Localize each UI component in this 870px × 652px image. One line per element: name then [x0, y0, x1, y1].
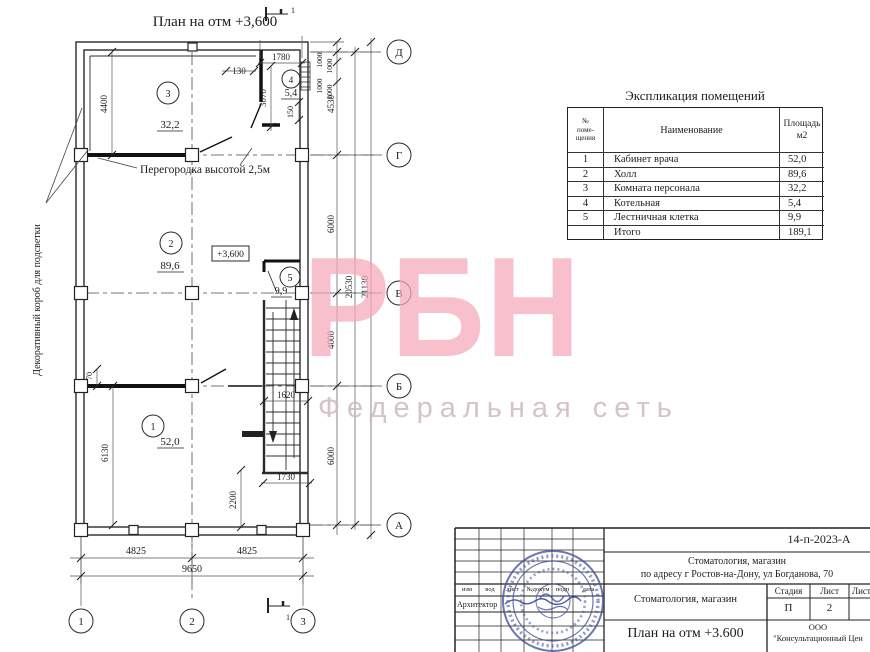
section-mark-bottom: [268, 598, 290, 613]
table-row-name: Кабинет врача: [604, 153, 780, 168]
room-2-number: 2: [169, 239, 174, 250]
dim-ticks-stairs: [237, 397, 314, 531]
axis-label-1: 1: [78, 616, 84, 628]
dim-lines-stairs: [241, 401, 312, 528]
sheet-header: Лист: [810, 586, 849, 596]
sheet-value: 2: [810, 602, 849, 614]
room-3-number: 3: [166, 89, 171, 100]
room-1-number: 1: [151, 422, 156, 433]
col-header-number: №поме-щения: [568, 108, 604, 153]
elevation-value: +3,600: [217, 250, 244, 260]
dim-1730: 1730: [277, 472, 296, 482]
dim-1620: 1620: [277, 390, 296, 400]
dim-1000-c: 1000: [325, 58, 334, 73]
dim-4825-b: 4825: [237, 546, 257, 557]
dim-4400: 4400: [99, 95, 109, 114]
drawing-name: План на отм +3.600: [606, 626, 765, 642]
dim-70: 70: [85, 372, 94, 380]
dim-1000-a: 1000: [315, 52, 324, 67]
table-row-num: 3: [568, 182, 604, 197]
rev-header-dokum: №докум: [525, 586, 551, 593]
dim-4530: 4530: [326, 95, 336, 114]
table-row-num: [568, 226, 604, 240]
dim-1000-b: 1000: [315, 78, 324, 93]
drawing-sheet: План на отм +3,600 1 1: [0, 0, 870, 652]
table-grid: №поме-щения Наименование Площадьм2 1 Каб…: [567, 107, 823, 240]
table-row-area: 89,6: [780, 168, 824, 183]
axis-label-a: А: [395, 520, 403, 532]
room-3-area: 32,2: [160, 119, 179, 131]
table-row-name: Комната персонала: [604, 182, 780, 197]
dim-9650: 9650: [182, 564, 202, 575]
rev-header-data: дата: [574, 586, 603, 593]
axis-label-3: 3: [300, 616, 306, 628]
rev-header-izm: изм: [456, 586, 478, 593]
table-row-num: 2: [568, 168, 604, 183]
stair-handrail: [242, 431, 264, 437]
table-row-num: 4: [568, 197, 604, 212]
plan-title: План на отм +3,600: [153, 14, 278, 30]
dim-150: 150: [286, 106, 295, 118]
watermark-logo: РБН: [303, 237, 581, 379]
side-note: Декоративный короб для подсветки: [32, 224, 43, 376]
axis-label-d: Д: [395, 47, 403, 59]
axis-label-g: Г: [396, 150, 402, 162]
table-row-name: Холл: [604, 168, 780, 183]
sheets-header: Листо: [852, 586, 870, 596]
object-name: Стоматология, магазин: [606, 594, 765, 605]
room-4-area: 5,4: [285, 88, 298, 99]
room-1-area: 52,0: [160, 436, 180, 448]
table-row-name: Лестничная клетка: [604, 211, 780, 226]
dim-6130: 6130: [100, 444, 110, 463]
rev-header-podp: подп: [553, 586, 572, 593]
col-header-area: Площадьм2: [780, 108, 824, 153]
room-schedule-table: Экспликация помещений №поме-щения Наимен…: [567, 88, 823, 240]
table-row-area: 189,1: [780, 226, 824, 240]
table-row-num: 5: [568, 211, 604, 226]
dim-3070: 3070: [258, 89, 268, 108]
room-5-area: 9,9: [275, 286, 288, 297]
table-row-area: 52,0: [780, 153, 824, 168]
dim-4825-a: 4825: [126, 546, 146, 557]
project-name: Стоматология, магазин по адресу г Ростов…: [606, 555, 868, 581]
col-header-name: Наименование: [604, 108, 780, 153]
organization-name: ООО "Консультационный Цен: [768, 622, 868, 644]
room-2-area: 89,6: [160, 260, 180, 272]
table-row-area: 32,2: [780, 182, 824, 197]
stairs-down-arrow: [269, 431, 277, 443]
section-mark-bottom-label: 1: [286, 613, 290, 622]
room-5-number: 5: [288, 273, 293, 284]
room-4-number: 4: [289, 75, 294, 85]
dim-130: 130: [232, 66, 246, 76]
table-title: Экспликация помещений: [567, 88, 823, 104]
rev-header-vod: вод: [480, 586, 500, 593]
dim-2200: 2200: [228, 491, 238, 510]
axis-label-2: 2: [189, 616, 195, 628]
dim-lines-bottom: [70, 537, 314, 584]
section-mark-top-label: 1: [291, 6, 295, 15]
stage-header: Стадия: [767, 586, 810, 596]
watermark-tagline: Федеральная сеть: [318, 392, 679, 425]
doc-number: 14-п-2023-А: [770, 532, 868, 547]
partition-note: Перегородка высотой 2,5м: [140, 164, 271, 176]
table-row-area: 5,4: [780, 197, 824, 212]
table-row-name: Котельная: [604, 197, 780, 212]
table-row-area: 9,9: [780, 211, 824, 226]
dim-1780: 1780: [272, 52, 291, 62]
rev-header-list: лист: [502, 586, 523, 593]
stairs-up-arrow: [290, 308, 298, 320]
stage-value: П: [767, 602, 810, 614]
dim-6000-b: 6000: [326, 447, 336, 466]
role-architect: Архитектор: [457, 600, 503, 609]
table-row-num: 1: [568, 153, 604, 168]
table-row-name: Итого: [604, 226, 780, 240]
